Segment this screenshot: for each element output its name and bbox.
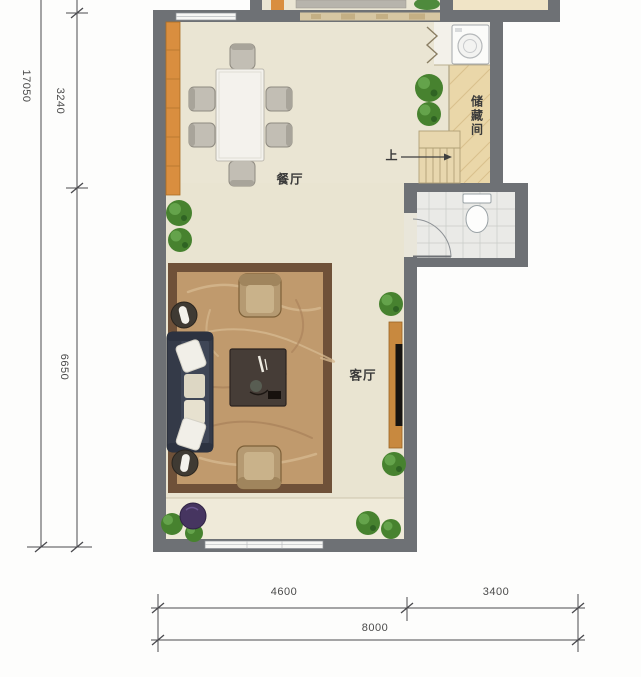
living-room-label: 客厅 [349, 365, 376, 384]
tv-cabinet-icon [389, 322, 403, 448]
side-table-lamp-icon [172, 450, 198, 476]
dim-total-height: 17050 [20, 69, 32, 102]
plant-icon [379, 292, 403, 316]
plant-icon [381, 519, 401, 539]
armchair-icon [239, 274, 281, 317]
armchair-icon [237, 446, 281, 489]
side-table-lamp-icon [171, 302, 197, 328]
plant-icon [415, 74, 443, 102]
left-dimension-lines [27, 0, 92, 552]
dim-upper-height: 3240 [54, 88, 66, 114]
top-sill-band [300, 13, 440, 21]
plant-icon [168, 228, 192, 252]
washing-machine-icon [452, 25, 489, 64]
sofa-icon [167, 332, 213, 452]
tv-icon [396, 344, 403, 426]
stairs-up-label: 上 [385, 147, 398, 164]
top-window [176, 13, 236, 20]
throw-pillow-icon [184, 374, 205, 398]
plant-icon [417, 102, 441, 126]
bottom-window [205, 541, 323, 549]
dim-bottom-right: 3400 [483, 586, 509, 598]
plant-icon [356, 511, 380, 535]
dim-bottom-total: 8000 [362, 622, 388, 634]
bean-bag-icon [180, 503, 206, 529]
storage-room-label: 储藏间 [469, 95, 486, 137]
plant-icon [166, 200, 192, 226]
dim-bottom-left: 4600 [271, 586, 297, 598]
coffee-table-icon [230, 349, 286, 406]
dining-table-icon [216, 69, 264, 161]
upper-cabinet-icon [271, 0, 284, 11]
upper-floor-partial-rooms [262, 0, 548, 11]
dining-room-label: 餐厅 [276, 169, 303, 188]
sideboard-cabinet-icon [166, 22, 180, 195]
floor-plan: 餐厅 客厅 储藏间 上 17050 3240 6650 4600 3400 80… [0, 0, 641, 677]
floor-plan-graphic [0, 0, 641, 677]
dim-lower-height: 6650 [58, 354, 70, 380]
plant-icon [382, 452, 406, 476]
